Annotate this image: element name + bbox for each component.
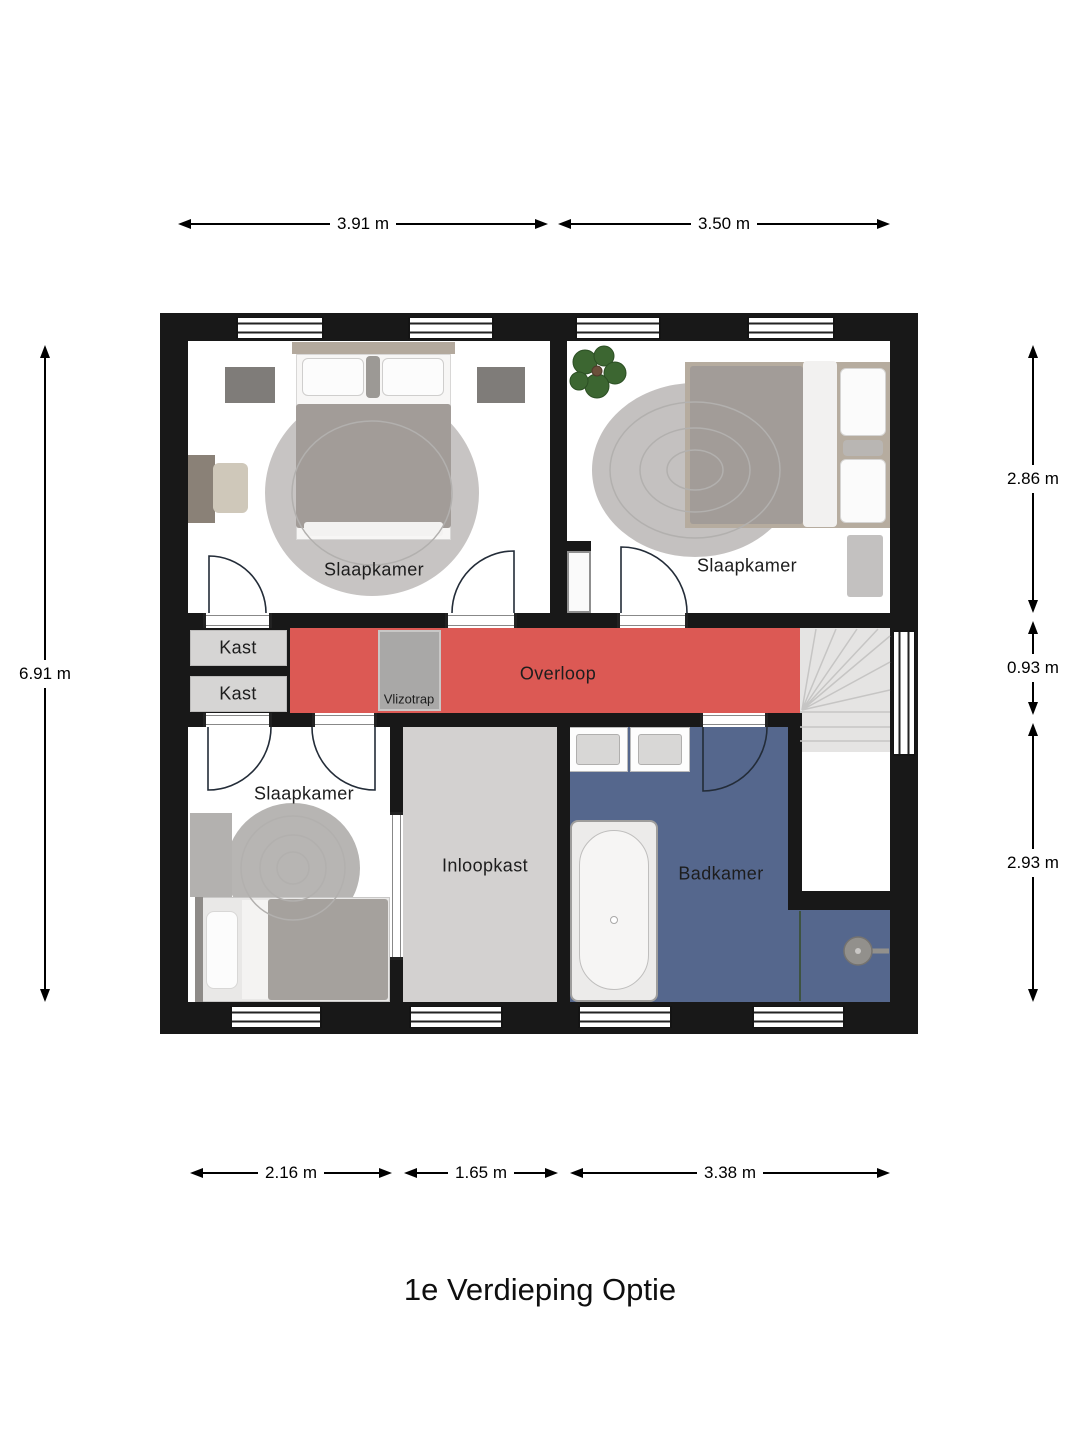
bed-duvet bbox=[690, 366, 803, 524]
page-title: 1e Verdieping Optie bbox=[0, 1272, 1080, 1308]
pillow-small bbox=[366, 356, 380, 398]
window bbox=[893, 630, 915, 756]
arrow-down-icon bbox=[1028, 600, 1038, 613]
arrow-up-icon bbox=[1028, 723, 1038, 736]
dimension-bottom-1: 2.16 m bbox=[190, 1161, 392, 1185]
floor-plan-canvas: 3.91 m 3.50 m 6.91 m 2.86 m 0.93 m 2.93 … bbox=[0, 0, 1080, 1440]
stairwell-void bbox=[802, 752, 890, 895]
nightstand bbox=[477, 367, 525, 403]
arrow-down-icon bbox=[40, 989, 50, 1002]
wall-stairwell-left bbox=[788, 713, 802, 910]
door-opening bbox=[700, 713, 768, 727]
dimension-right-2: 0.93 m bbox=[1000, 621, 1066, 715]
dimension-label: 0.93 m bbox=[1007, 654, 1059, 682]
room-label-closet-bottom: Kast bbox=[219, 684, 257, 705]
pillow-small bbox=[843, 440, 883, 456]
arrow-left-icon bbox=[404, 1168, 417, 1178]
room-label-walk-in-closet: Inloopkast bbox=[442, 856, 528, 877]
sink-basin bbox=[576, 734, 620, 765]
pillow bbox=[840, 459, 886, 523]
room-label-closet-top: Kast bbox=[219, 638, 257, 659]
window bbox=[575, 317, 661, 339]
window bbox=[409, 1006, 503, 1028]
arrow-right-icon bbox=[877, 219, 890, 229]
mat bbox=[847, 535, 883, 597]
wall-closet-bathroom bbox=[557, 727, 570, 1002]
bathtub-drain bbox=[610, 916, 618, 924]
arrow-right-icon bbox=[535, 219, 548, 229]
door-opening bbox=[617, 613, 688, 628]
arrow-down-icon bbox=[1028, 989, 1038, 1002]
arrow-right-icon bbox=[379, 1168, 392, 1178]
dimension-label: 3.91 m bbox=[330, 214, 396, 234]
room-label-bedroom-top-right: Slaapkamer bbox=[697, 556, 797, 577]
dimension-left-1: 6.91 m bbox=[12, 345, 78, 1002]
arrow-down-icon bbox=[1028, 702, 1038, 715]
sliding-door-opening bbox=[390, 812, 403, 960]
bed-foot-sheet bbox=[304, 522, 443, 536]
door-opening bbox=[203, 713, 272, 727]
wall-stairwell-bottom bbox=[788, 891, 890, 910]
dimension-label: 2.86 m bbox=[1007, 465, 1059, 493]
nightstand bbox=[225, 367, 275, 403]
room-label-bedroom-top-left: Slaapkamer bbox=[324, 560, 424, 581]
bed-sheet bbox=[242, 900, 268, 999]
dimension-top-1: 3.91 m bbox=[178, 212, 548, 236]
wall-between-top-bedrooms bbox=[550, 341, 567, 613]
sink-basin bbox=[638, 734, 682, 765]
shower-area bbox=[788, 910, 890, 1002]
dimension-right-3: 2.93 m bbox=[1000, 723, 1066, 1002]
dimension-label: 6.91 m bbox=[19, 660, 71, 688]
bathtub-basin bbox=[579, 830, 649, 990]
window bbox=[747, 317, 835, 339]
shaft-wall bbox=[567, 541, 591, 551]
room-label-bathroom: Badkamer bbox=[678, 864, 763, 885]
door-opening bbox=[445, 613, 517, 628]
arrow-up-icon bbox=[1028, 621, 1038, 634]
dimension-label: 2.16 m bbox=[258, 1163, 324, 1183]
dimension-top-2: 3.50 m bbox=[558, 212, 890, 236]
desk-chair bbox=[213, 463, 248, 513]
bed-folded-sheet bbox=[803, 361, 837, 527]
bed-duvet bbox=[296, 404, 451, 528]
arrow-left-icon bbox=[190, 1168, 203, 1178]
arrow-right-icon bbox=[545, 1168, 558, 1178]
shaft bbox=[567, 551, 591, 613]
bed-headboard bbox=[195, 897, 203, 1002]
window bbox=[752, 1006, 845, 1028]
wall-corridor-north bbox=[160, 613, 918, 628]
pillow bbox=[206, 911, 238, 989]
arrow-up-icon bbox=[40, 345, 50, 358]
window bbox=[578, 1006, 672, 1028]
arrow-up-icon bbox=[1028, 345, 1038, 358]
bed-duvet bbox=[268, 899, 388, 1000]
pillow bbox=[840, 368, 886, 436]
room-label-loft-ladder: Vlizotrap bbox=[384, 692, 435, 707]
dimension-bottom-2: 1.65 m bbox=[404, 1161, 558, 1185]
window bbox=[408, 317, 494, 339]
dimension-label: 2.93 m bbox=[1007, 849, 1059, 877]
dimension-bottom-3: 3.38 m bbox=[570, 1161, 890, 1185]
cabinet bbox=[190, 813, 232, 897]
room-label-landing: Overloop bbox=[520, 664, 596, 685]
door-opening bbox=[312, 713, 377, 727]
dimension-label: 3.50 m bbox=[691, 214, 757, 234]
arrow-left-icon bbox=[558, 219, 571, 229]
dimension-label: 1.65 m bbox=[448, 1163, 514, 1183]
window bbox=[236, 317, 324, 339]
dimension-right-1: 2.86 m bbox=[1000, 345, 1066, 613]
bed-headboard bbox=[292, 342, 455, 354]
arrow-left-icon bbox=[570, 1168, 583, 1178]
arrow-left-icon bbox=[178, 219, 191, 229]
dimension-label: 3.38 m bbox=[697, 1163, 763, 1183]
stairs bbox=[800, 628, 890, 752]
pillow bbox=[382, 358, 444, 396]
arrow-right-icon bbox=[877, 1168, 890, 1178]
pillow bbox=[302, 358, 364, 396]
window bbox=[230, 1006, 322, 1028]
door-opening bbox=[203, 613, 272, 628]
room-label-bedroom-bottom-left: Slaapkamer bbox=[254, 784, 354, 805]
